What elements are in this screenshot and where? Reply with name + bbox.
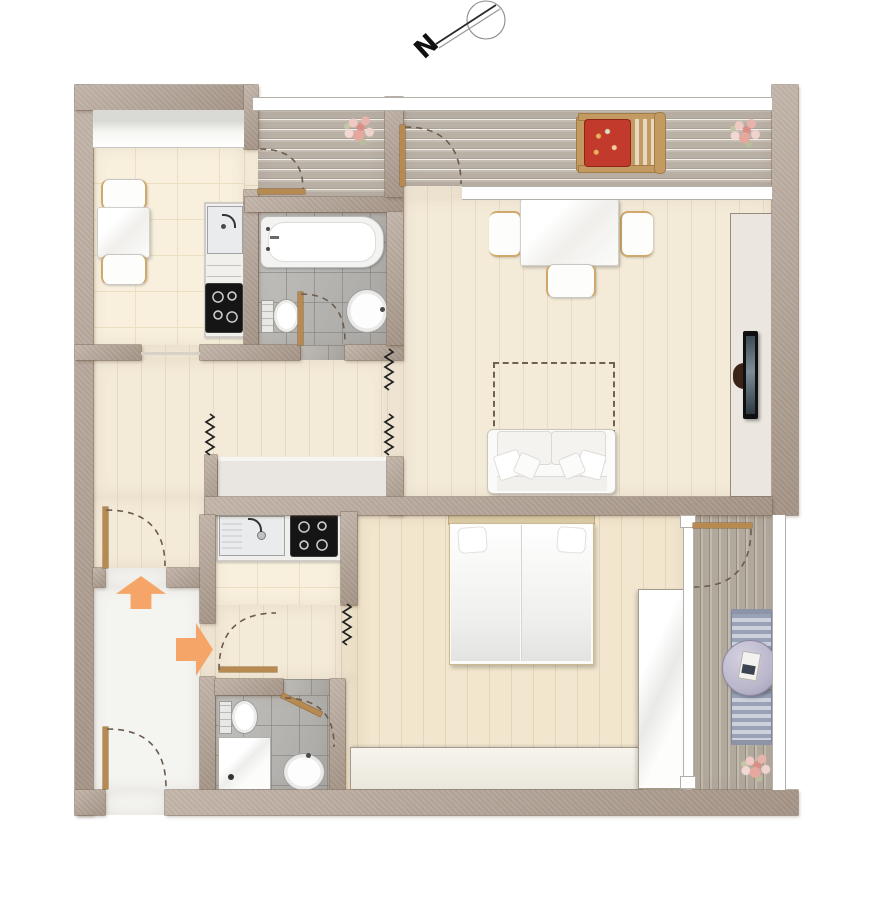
compass-needle-a — [439, 9, 500, 48]
door-leaf-bathroom-upper — [298, 292, 303, 345]
bed-pillow-right — [556, 526, 587, 554]
tub-tap-icon-2 — [266, 247, 270, 251]
living-chair-west — [489, 211, 522, 257]
wall-outer-west — [75, 85, 93, 815]
wall-stair-east-upper — [200, 515, 215, 623]
washbasin-lower — [283, 753, 325, 791]
wall-outer-east — [772, 85, 798, 515]
planned-table-outline — [493, 362, 615, 436]
basin-tap-upper-icon — [380, 307, 385, 312]
wall-stair-north-a — [93, 568, 105, 587]
cooktop-upper — [206, 284, 242, 332]
floor-doorway-bathroom-upper — [300, 345, 345, 360]
window-kitchen-north — [93, 110, 244, 148]
balcony-railing — [772, 515, 786, 790]
wall-bathroom-upper-north — [245, 197, 403, 212]
living-chair-east — [620, 211, 653, 257]
flower-pot-terrace-right — [729, 116, 763, 148]
wall-stair-east-lower — [200, 677, 215, 790]
living-dining-table — [520, 199, 619, 266]
door-leaf-kitchen-terrace — [258, 189, 305, 194]
lounger-slats — [631, 119, 656, 165]
door-leaf-balcony — [693, 523, 752, 528]
floor-doorway-building-entry — [105, 790, 165, 815]
bathtub-basin — [268, 222, 376, 262]
lounger-red-cushion — [584, 119, 631, 167]
wall-kitchen-east-lower — [244, 190, 258, 347]
floor-doorway-bedroom — [341, 605, 357, 679]
glass-front-post-south — [680, 776, 696, 789]
terrace-railing — [253, 97, 772, 111]
wall-kitchen-south-b — [200, 345, 300, 360]
compass-circle — [467, 1, 505, 39]
bed-pillow-left — [457, 526, 488, 554]
flower-pot-terrace-left — [343, 113, 377, 146]
wall-bathroom-lower-east — [330, 679, 345, 790]
wall-kitchenette-east — [341, 512, 357, 605]
door-leaf-living-terrace — [400, 125, 405, 186]
door-leaf-apartment-lower — [219, 667, 277, 672]
wall-closet — [217, 457, 389, 502]
basin-tap-lower-icon — [306, 753, 311, 758]
sink-drain-lower — [257, 531, 266, 540]
toilet-bowl-lower — [231, 700, 258, 734]
dining-chair-north — [101, 179, 147, 210]
floor-doorway-living-terrace — [403, 186, 462, 198]
sideboard — [350, 747, 642, 790]
tub-tap-icon — [266, 227, 270, 231]
door-leaf-stair-upper — [103, 507, 108, 568]
floor-stairwell — [93, 587, 200, 790]
floor-passage-hall-living — [387, 360, 403, 457]
wall-kitchen-east-upper — [244, 85, 258, 149]
dining-chair-south — [101, 254, 147, 285]
wall-outer-north-west — [75, 85, 253, 110]
tv-screen — [746, 336, 755, 414]
north-label: N — [409, 28, 445, 65]
wall-kitchen-south-a — [75, 345, 141, 360]
north-compass: N — [409, 1, 505, 65]
wall-apartment-separation — [205, 497, 772, 515]
compass-needle-b — [436, 5, 496, 44]
dining-table-small — [97, 207, 150, 258]
wall-kitchen-south-c — [345, 345, 403, 360]
living-glass-front — [462, 186, 772, 200]
deck-chair-south — [731, 689, 772, 745]
wall-outer-south-b — [165, 790, 798, 815]
shower — [218, 737, 271, 790]
floor-hallway-upper-south — [93, 497, 205, 568]
toilet-bowl-upper — [273, 299, 300, 333]
wall-outer-south-a — [75, 790, 105, 815]
living-chair-south — [546, 264, 596, 298]
wall-bathroom-lower-north — [215, 679, 283, 695]
sink-drainboard-lower — [222, 521, 242, 549]
tub-spout-icon — [270, 236, 279, 239]
door-leaf-building-entry — [103, 727, 108, 789]
bedroom-glass-front — [683, 517, 694, 787]
lounger-end-right — [654, 112, 666, 174]
shower-drain — [228, 774, 234, 780]
floor-doorway-bathroom-lower — [283, 679, 330, 695]
wardrobe — [638, 589, 687, 789]
floor-plan-page: N — [0, 0, 896, 900]
kitchen-drawers-upper — [207, 255, 241, 281]
flower-pot-balcony — [740, 752, 773, 782]
wall-living-west-upper — [387, 212, 403, 345]
threshold-kitchen-hall — [141, 352, 200, 355]
cooktop-lower — [291, 515, 337, 556]
